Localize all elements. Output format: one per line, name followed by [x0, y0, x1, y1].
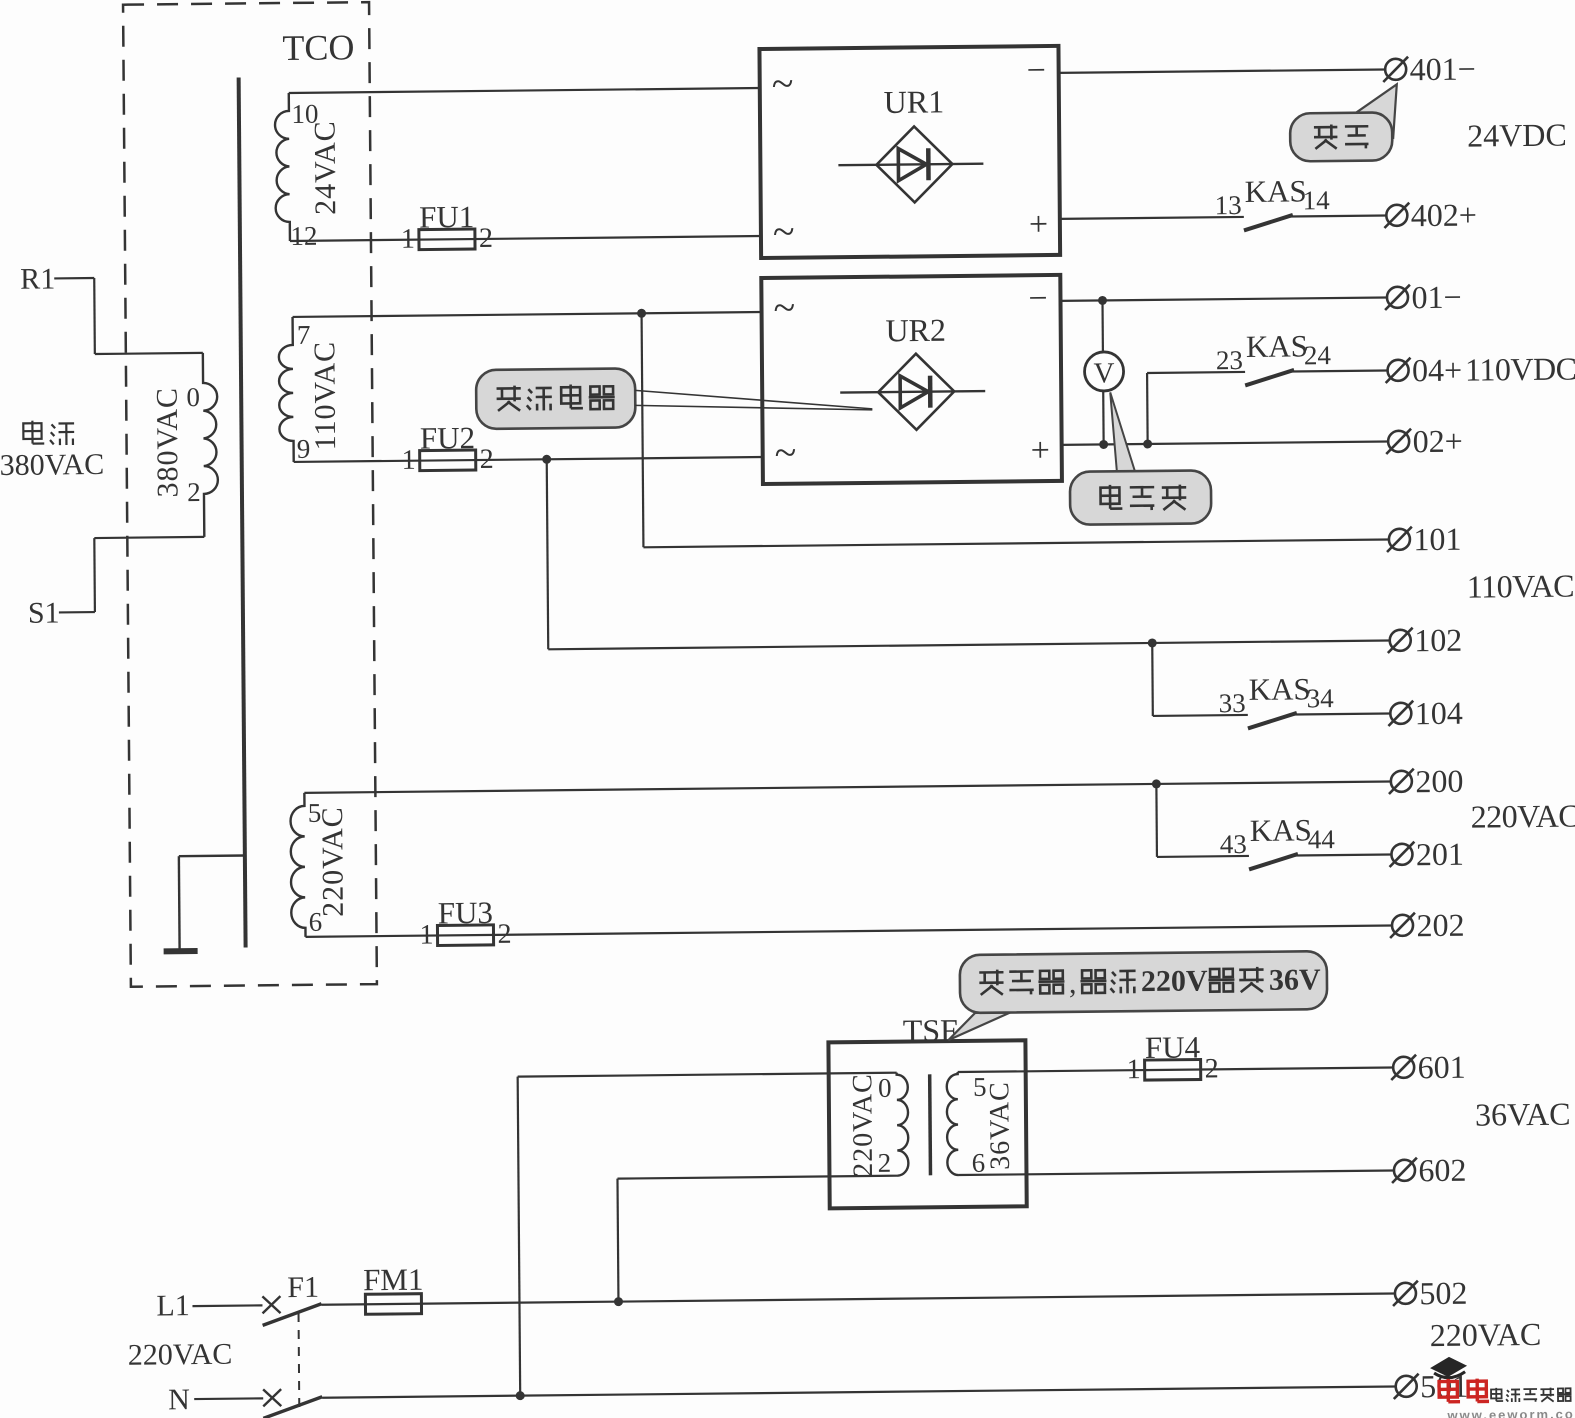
- svg-text:380VAC: 380VAC: [0, 448, 104, 482]
- svg-text:~: ~: [773, 209, 795, 254]
- svg-text:2: 2: [497, 919, 511, 950]
- svg-text:04+: 04+: [1412, 352, 1462, 389]
- svg-text:502: 502: [1419, 1275, 1467, 1312]
- svg-text:110VAC: 110VAC: [1467, 568, 1575, 605]
- svg-text:UR2: UR2: [885, 312, 946, 349]
- svg-text:14: 14: [1303, 185, 1331, 215]
- svg-text:104: 104: [1415, 695, 1463, 732]
- svg-text:V: V: [1093, 357, 1114, 389]
- svg-text:202: 202: [1416, 907, 1464, 944]
- svg-text:44: 44: [1308, 824, 1336, 854]
- svg-text:110VDC: 110VDC: [1465, 350, 1575, 387]
- svg-text:L1: L1: [156, 1289, 190, 1322]
- svg-text:1: 1: [401, 224, 415, 255]
- svg-text:1: 1: [419, 920, 433, 951]
- svg-text:220VAC: 220VAC: [1430, 1316, 1542, 1353]
- svg-text:−: −: [1027, 52, 1046, 89]
- svg-text:33: 33: [1219, 688, 1246, 718]
- svg-text:02+: 02+: [1413, 423, 1463, 460]
- svg-text:TCO: TCO: [282, 27, 354, 68]
- svg-text:220V: 220V: [1141, 964, 1208, 998]
- svg-text:602: 602: [1418, 1152, 1466, 1189]
- svg-text:2: 2: [1205, 1053, 1219, 1084]
- svg-text:36VAC: 36VAC: [1475, 1096, 1571, 1133]
- svg-text:601: 601: [1418, 1049, 1466, 1086]
- svg-text:43: 43: [1220, 829, 1247, 859]
- svg-text:01−: 01−: [1411, 279, 1461, 316]
- svg-text:FM1: FM1: [363, 1262, 424, 1298]
- svg-text:FU1: FU1: [419, 199, 474, 235]
- svg-text:110VAC: 110VAC: [308, 341, 342, 451]
- svg-text:+: +: [1029, 206, 1048, 243]
- svg-text:KAS: KAS: [1244, 173, 1306, 209]
- svg-text:5: 5: [973, 1072, 987, 1102]
- svg-text:FU4: FU4: [1145, 1029, 1201, 1065]
- svg-text:102: 102: [1414, 622, 1462, 659]
- svg-text:−: −: [1028, 280, 1047, 317]
- svg-text:0: 0: [186, 382, 200, 412]
- svg-text:FU2: FU2: [420, 420, 475, 456]
- svg-text:23: 23: [1216, 345, 1243, 375]
- svg-text:12: 12: [290, 221, 317, 251]
- svg-text:2: 2: [480, 444, 494, 475]
- svg-text:380VAC: 380VAC: [151, 387, 185, 498]
- svg-text:,: ,: [1069, 967, 1077, 1000]
- svg-text:~: ~: [773, 285, 795, 330]
- svg-text:~: ~: [775, 430, 797, 475]
- svg-text:~: ~: [772, 61, 794, 106]
- svg-text:220VAC: 220VAC: [128, 1338, 233, 1372]
- svg-text:R1: R1: [20, 262, 55, 295]
- svg-text:+: +: [1031, 432, 1050, 469]
- svg-text:201: 201: [1416, 836, 1464, 873]
- svg-text:2: 2: [878, 1148, 892, 1178]
- svg-text:6: 6: [972, 1148, 986, 1178]
- svg-text:F1: F1: [287, 1271, 319, 1304]
- svg-text:UR1: UR1: [884, 83, 945, 120]
- svg-text:N: N: [168, 1383, 190, 1416]
- svg-text:KAS: KAS: [1248, 671, 1310, 707]
- svg-text:13: 13: [1215, 190, 1242, 220]
- svg-text:2: 2: [479, 223, 493, 254]
- svg-text:220VAC: 220VAC: [1471, 797, 1575, 834]
- svg-text:KAS: KAS: [1250, 812, 1312, 848]
- svg-text:S1: S1: [28, 596, 60, 629]
- svg-text:36V: 36V: [1269, 963, 1321, 997]
- svg-text:101: 101: [1413, 521, 1461, 558]
- svg-text:200: 200: [1415, 763, 1463, 800]
- svg-text:2: 2: [187, 477, 201, 507]
- svg-text:24VAC: 24VAC: [308, 120, 342, 215]
- svg-text:0: 0: [878, 1073, 892, 1103]
- svg-text:220VAC: 220VAC: [316, 806, 350, 917]
- svg-text:TSF: TSF: [903, 1012, 958, 1049]
- svg-text:36VAC: 36VAC: [984, 1081, 1016, 1170]
- svg-text:34: 34: [1307, 683, 1335, 713]
- svg-text:FU3: FU3: [438, 895, 493, 931]
- svg-text:24: 24: [1304, 340, 1332, 370]
- svg-text:402+: 402+: [1411, 197, 1477, 234]
- svg-text:www.eeworm.com: www.eeworm.com: [1446, 1406, 1575, 1418]
- svg-text:401−: 401−: [1410, 51, 1476, 88]
- svg-text:1: 1: [402, 445, 416, 476]
- svg-text:KAS: KAS: [1246, 328, 1308, 364]
- svg-text:24VDC: 24VDC: [1467, 117, 1567, 154]
- svg-text:220VAC: 220VAC: [847, 1073, 879, 1177]
- svg-text:1: 1: [1127, 1054, 1141, 1085]
